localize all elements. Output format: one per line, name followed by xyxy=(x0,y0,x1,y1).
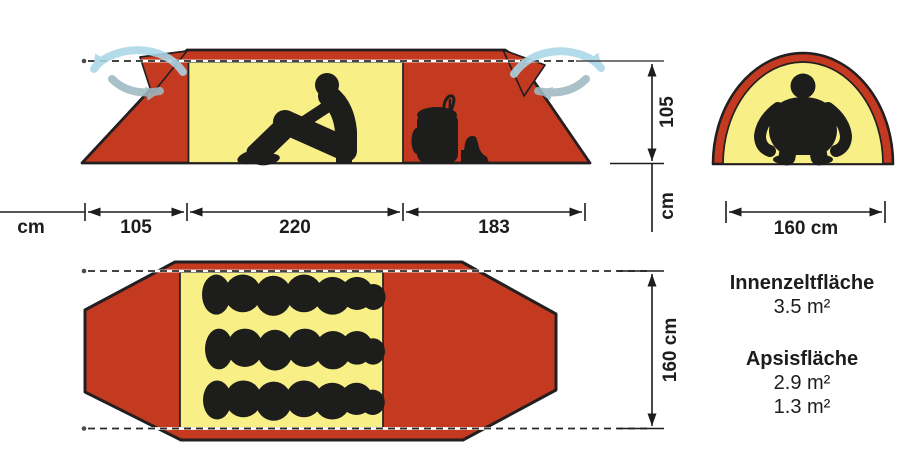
floor-depth-dimension: 160 cm xyxy=(618,271,681,429)
vent-air-in-arrow xyxy=(538,79,586,93)
tent-front-view xyxy=(713,53,893,164)
front-width-label: 160 cm xyxy=(774,218,838,239)
axis-unit-label: cm xyxy=(17,217,44,238)
front-width-dimension: 160 cm xyxy=(726,201,885,239)
side-height-unit-label: cm xyxy=(657,192,678,219)
floor-depth-label: 160 cm xyxy=(660,318,681,382)
tent-side-view xyxy=(82,50,601,167)
side-height-dimension: 105 cm xyxy=(576,61,678,232)
floor-bottom-reference-dot xyxy=(82,426,87,431)
apse-area-value-1: 2.9 m² xyxy=(698,371,900,395)
inner-area-heading: Innenzeltfläche xyxy=(698,271,900,295)
right-apse-length-label: 183 xyxy=(478,217,510,238)
inner-tent-length-label: 220 xyxy=(279,217,311,238)
ridge-reference-dot xyxy=(82,59,87,64)
spacer xyxy=(698,319,900,347)
tent-floor-plan xyxy=(82,262,650,440)
left-apse-length-label: 105 xyxy=(120,217,152,238)
area-info-panel: Innenzeltfläche 3.5 m² Apsisfläche 2.9 m… xyxy=(698,271,900,419)
length-dimension-axis: cm 105 220 183 xyxy=(0,203,585,238)
apse-area-heading: Apsisfläche xyxy=(698,347,900,371)
floor-top-reference-dot xyxy=(82,269,87,274)
side-view-inner-tent xyxy=(189,62,404,163)
apse-area-value-2: 1.3 m² xyxy=(698,395,900,419)
inner-area-value: 3.5 m² xyxy=(698,295,900,319)
sleeping-bags xyxy=(202,275,386,421)
side-height-label: 105 xyxy=(657,96,678,128)
tent-spec-diagram: cm 105 220 183 105 cm 160 cm xyxy=(0,0,900,460)
